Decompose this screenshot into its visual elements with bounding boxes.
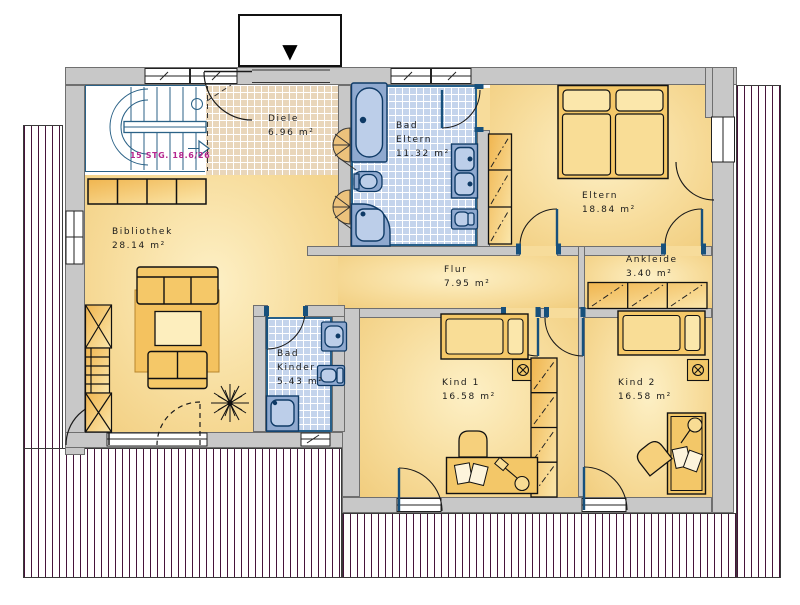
washbasin-bad-kinder [322, 322, 347, 351]
room-area: 28.14 m² [112, 239, 173, 253]
toilet-bad-eltern [452, 209, 478, 229]
room-name: Kinder [277, 361, 323, 375]
room-name: Bad [277, 347, 323, 361]
room-area: 16.58 m² [618, 390, 672, 404]
room-label-eltern: Eltern 18.84 m² [582, 189, 636, 217]
room-name: Bibliothek [112, 225, 173, 239]
bidet [354, 172, 382, 192]
ceiling-light-kind2 [688, 360, 709, 381]
sideboard [88, 179, 206, 204]
room-area: 11.32 m² [396, 147, 450, 161]
window-top-bath [391, 69, 471, 84]
room-area: 18.84 m² [582, 203, 636, 217]
room-name: Bad [396, 119, 450, 133]
balcony-door-eltern [712, 117, 735, 162]
cabinet-x-bottom [86, 393, 112, 432]
wardrobe-ankleide [588, 283, 707, 309]
room-area: 5.43 m² [277, 375, 323, 389]
room-area: 7.95 m² [444, 277, 490, 291]
chair-kind1 [459, 431, 487, 457]
balcony-door-kind2-slot [582, 499, 626, 512]
double-washbasin [452, 144, 478, 198]
room-area: 16.58 m² [442, 390, 496, 404]
room-name: Diele [268, 112, 314, 126]
room-name: Kind 1 [442, 376, 496, 390]
room-label-ankleide: Ankleide 3.40 m² [626, 253, 678, 281]
room-name: Eltern [582, 189, 636, 203]
sofa-two-seat [148, 352, 207, 389]
sofa-three-seat [137, 267, 218, 304]
cabinet-x-top [86, 305, 112, 348]
room-area: 3.40 m² [626, 267, 678, 281]
bed-kind2 [618, 311, 705, 355]
window-left-bibliothek [66, 211, 83, 264]
room-label-bad-kinder: Bad Kinder 5.43 m² [277, 347, 323, 389]
room-area: 6.96 m² [268, 126, 314, 140]
diele-boundary-dashed [207, 85, 231, 171]
room-label-bad-eltern: Bad Eltern 11.32 m² [396, 119, 450, 161]
wardrobe-eltern [489, 134, 512, 244]
bed-kind1 [441, 314, 528, 359]
corner-shower [352, 204, 391, 246]
shower-bad-kinder [267, 396, 299, 431]
room-label-kind2: Kind 2 16.58 m² [618, 376, 672, 404]
floorplan-graphics [0, 0, 800, 605]
desk-kind1 [447, 457, 538, 493]
room-label-kind1: Kind 1 16.58 m² [442, 376, 496, 404]
double-bed [558, 86, 668, 179]
entrance-threshold [252, 70, 330, 83]
bathtub [352, 83, 388, 162]
balcony-door-kind1-slot [397, 499, 441, 512]
chair-kind2 [634, 438, 672, 476]
room-name: Kind 2 [618, 376, 672, 390]
room-name: Ankleide [626, 253, 678, 267]
window-bad-kinder [301, 433, 330, 446]
room-name: Flur [444, 263, 490, 277]
bookshelf [86, 348, 110, 393]
desk-kind2 [668, 413, 706, 494]
room-name: Eltern [396, 133, 450, 147]
ceiling-light-kind1 [513, 360, 534, 381]
room-label-diele: Diele 6.96 m² [268, 112, 314, 140]
coffee-table [155, 312, 201, 346]
floorplan-canvas: ▼ [0, 0, 800, 605]
room-label-bibliothek: Bibliothek 28.14 m² [112, 225, 173, 253]
staircase-note: 15 STG. 18.6/26 [130, 151, 210, 160]
plant-icon [211, 384, 249, 422]
room-label-flur: Flur 7.95 m² [444, 263, 490, 291]
